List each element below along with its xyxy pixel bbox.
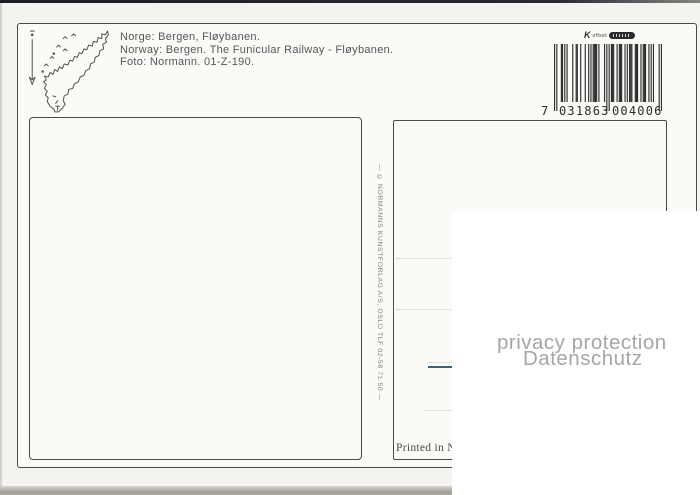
printer-logo-icon: K xyxy=(584,31,591,40)
photo-credit-line: Foto: Normann. 01-Z-190. xyxy=(120,56,450,69)
norway-coastline xyxy=(44,31,109,112)
postcard-scan: Norge: Bergen, Fløybanen. Norway: Bergen… xyxy=(0,0,700,495)
printed-in-label: Printed in N xyxy=(396,442,456,454)
location-arrow-icon xyxy=(29,40,35,85)
printer-logo-badge xyxy=(609,32,635,39)
title-line-norwegian: Norge: Bergen, Fløybanen. xyxy=(120,31,450,44)
barcode-bars xyxy=(554,44,662,111)
barcode-digits-left: 031863 xyxy=(559,104,610,118)
norway-map xyxy=(20,26,114,116)
image-placeholder-box xyxy=(29,117,362,460)
barcode: 7 031863 004006 xyxy=(540,44,672,120)
printer-logo: K offset xyxy=(584,29,654,42)
barcode-digits-right: 004006 xyxy=(612,104,663,118)
barcode-digit-first: 7 xyxy=(541,104,549,118)
scan-top-edge xyxy=(0,0,700,3)
scan-left-edge xyxy=(0,0,2,495)
publisher-spine-text: — © NORMANNS KUNSTFORLAG A/S, OSLO TLF 0… xyxy=(376,164,383,424)
norway-map-drawing xyxy=(20,26,114,116)
title-line-english: Norway: Bergen. The Funicular Railway - … xyxy=(120,44,450,57)
watermark-line-de: Datenschutz xyxy=(523,351,642,367)
title-block: Norge: Bergen, Fløybanen. Norway: Bergen… xyxy=(120,31,450,69)
printer-logo-label: offset xyxy=(593,33,608,39)
